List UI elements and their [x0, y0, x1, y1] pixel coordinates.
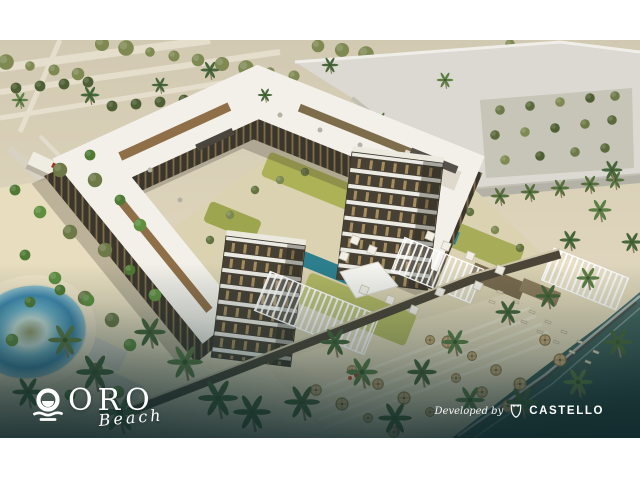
logo-text: ORO Beach: [68, 386, 155, 432]
developer-credit: Developed by CASTELLO: [435, 404, 604, 418]
developed-by-label: Developed by: [435, 406, 504, 417]
castle-shield-icon: [510, 404, 522, 418]
sun-over-waves-icon: [33, 388, 63, 424]
aerial-rendering: ORO Beach Developed by CASTELLO: [0, 40, 640, 438]
developer-name: CASTELLO: [529, 405, 604, 417]
rendering-artwork: [0, 40, 640, 438]
oro-beach-logo: ORO Beach: [33, 386, 155, 432]
rendering-frame: ORO Beach Developed by CASTELLO: [0, 0, 640, 480]
